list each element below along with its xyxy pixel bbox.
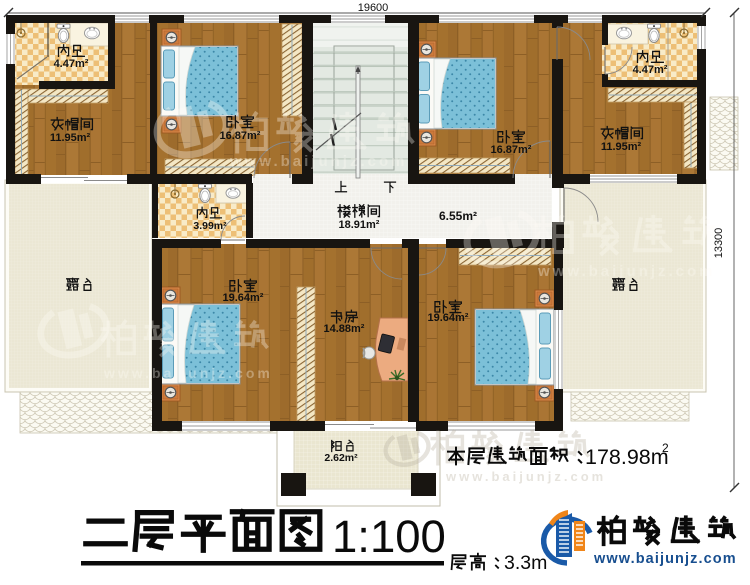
svg-text:www.baijunjz.com: www.baijunjz.com — [445, 469, 606, 484]
svg-text:4.47m²: 4.47m² — [633, 64, 668, 76]
svg-text:11.95m²: 11.95m² — [50, 132, 91, 144]
svg-text:6.55m²: 6.55m² — [439, 209, 477, 223]
svg-text:3.3m: 3.3m — [504, 552, 547, 574]
svg-text:19.64m²: 19.64m² — [428, 312, 469, 324]
svg-text:18.91m²: 18.91m² — [339, 219, 380, 231]
svg-text:www.baijunjz.com: www.baijunjz.com — [229, 153, 407, 170]
svg-text:2: 2 — [662, 441, 669, 455]
svg-text:13300: 13300 — [713, 228, 725, 259]
svg-text:2.62m²: 2.62m² — [324, 452, 358, 464]
svg-text:19600: 19600 — [358, 2, 389, 14]
svg-text:14.88m²: 14.88m² — [324, 323, 365, 335]
svg-text:www.baijunjz.com: www.baijunjz.com — [537, 263, 715, 280]
svg-text:178.98m: 178.98m — [585, 445, 669, 469]
svg-text:16.87m²: 16.87m² — [220, 130, 261, 142]
svg-text:www.baijunjz.com: www.baijunjz.com — [593, 551, 737, 567]
svg-text:3.99m²: 3.99m² — [193, 220, 227, 232]
svg-text:16.87m²: 16.87m² — [491, 144, 532, 156]
svg-text:1:100: 1:100 — [332, 511, 446, 562]
svg-text:4.47m²: 4.47m² — [54, 58, 89, 70]
svg-text:11.95m²: 11.95m² — [601, 141, 642, 153]
svg-text:www.baijunjz.com: www.baijunjz.com — [103, 365, 273, 381]
svg-text:19.64m²: 19.64m² — [223, 292, 264, 304]
